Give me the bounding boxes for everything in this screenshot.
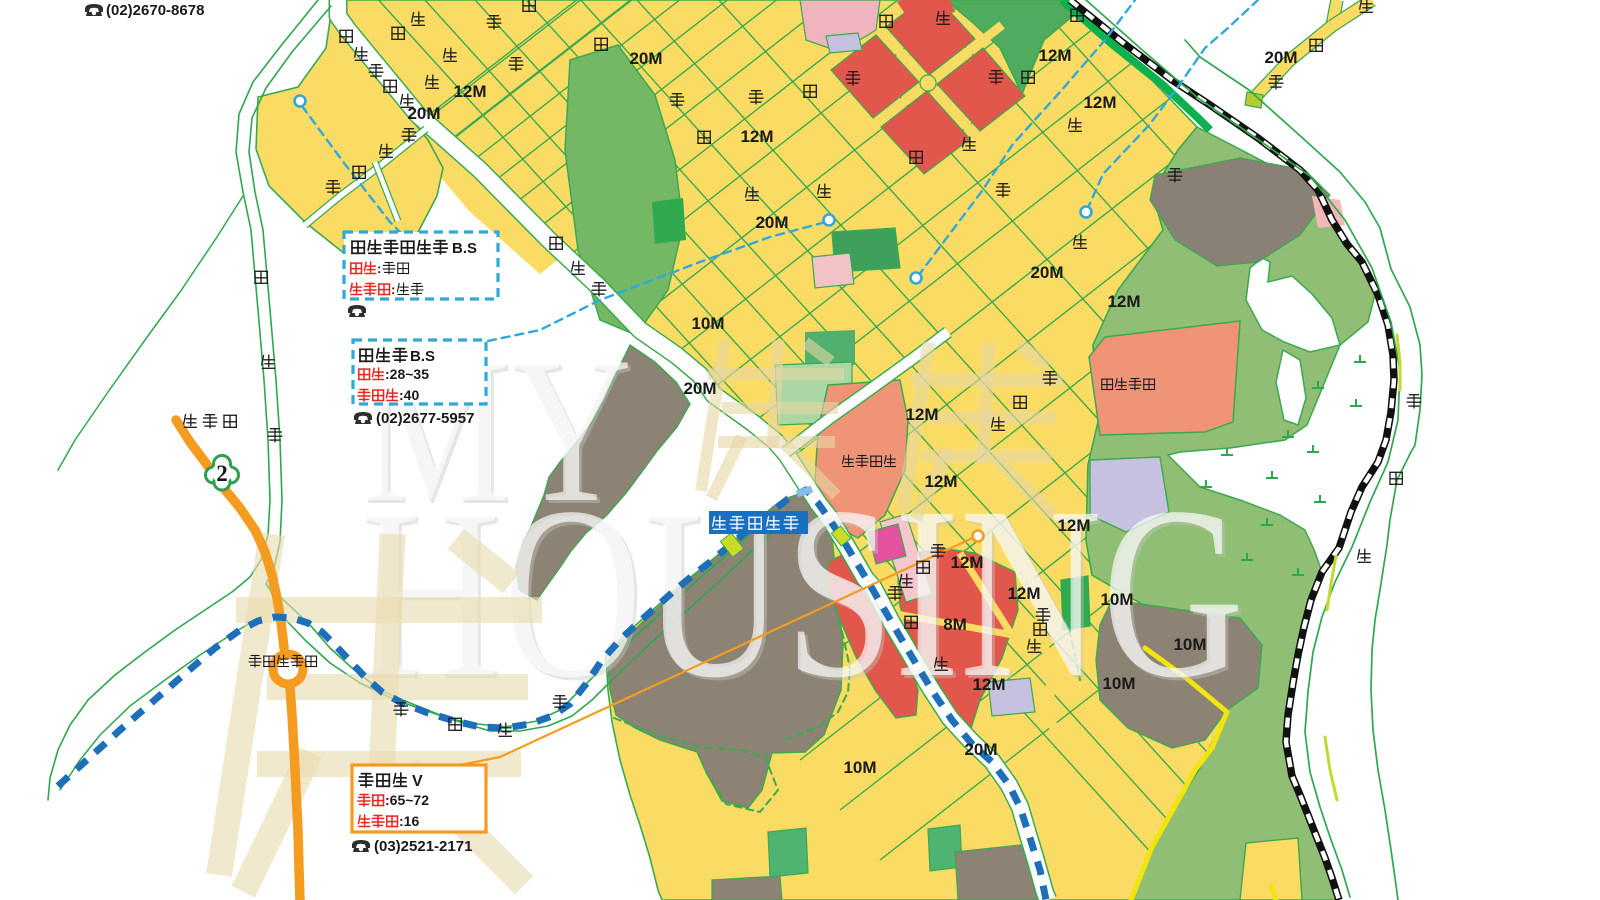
svg-text:12M: 12M bbox=[905, 405, 938, 424]
svg-text:12M: 12M bbox=[1007, 584, 1040, 603]
svg-text:20M: 20M bbox=[683, 379, 716, 398]
svg-text:20M: 20M bbox=[1264, 48, 1297, 67]
svg-text:12M: 12M bbox=[1057, 516, 1090, 535]
svg-text:(03)2521-2171: (03)2521-2171 bbox=[374, 838, 472, 855]
svg-text:B.S: B.S bbox=[410, 348, 435, 365]
svg-text:(02)2670-8678: (02)2670-8678 bbox=[106, 2, 204, 19]
svg-text:12M: 12M bbox=[1038, 46, 1071, 65]
svg-text:12M: 12M bbox=[453, 82, 486, 101]
svg-text::40: :40 bbox=[399, 387, 419, 403]
svg-text::28~35: :28~35 bbox=[385, 366, 429, 382]
svg-text:12M: 12M bbox=[950, 553, 983, 572]
svg-text:10M: 10M bbox=[1102, 674, 1135, 693]
svg-text:20M: 20M bbox=[629, 49, 662, 68]
svg-text:(02)2677-5957: (02)2677-5957 bbox=[376, 410, 474, 427]
svg-text:20M: 20M bbox=[964, 740, 997, 759]
svg-text:B.S: B.S bbox=[452, 240, 477, 257]
svg-text:12M: 12M bbox=[1083, 93, 1116, 112]
svg-text::: : bbox=[391, 282, 395, 297]
svg-text:12M: 12M bbox=[740, 127, 773, 146]
svg-text::: : bbox=[377, 261, 381, 276]
svg-text:10M: 10M bbox=[691, 314, 724, 333]
svg-text::16: :16 bbox=[399, 813, 419, 829]
svg-text:20M: 20M bbox=[755, 213, 788, 232]
svg-text:12M: 12M bbox=[1107, 292, 1140, 311]
svg-text:V: V bbox=[412, 773, 423, 790]
svg-text:10M: 10M bbox=[1100, 590, 1133, 609]
svg-text::65~72: :65~72 bbox=[385, 792, 429, 808]
svg-text:12M: 12M bbox=[924, 472, 957, 491]
svg-text:12M: 12M bbox=[972, 675, 1005, 694]
svg-text:20M: 20M bbox=[1030, 263, 1063, 282]
svg-text:20M: 20M bbox=[407, 104, 440, 123]
svg-text:2: 2 bbox=[216, 461, 228, 486]
svg-text:10M: 10M bbox=[843, 758, 876, 777]
svg-text:10M: 10M bbox=[1173, 635, 1206, 654]
svg-text:8M: 8M bbox=[943, 615, 967, 634]
